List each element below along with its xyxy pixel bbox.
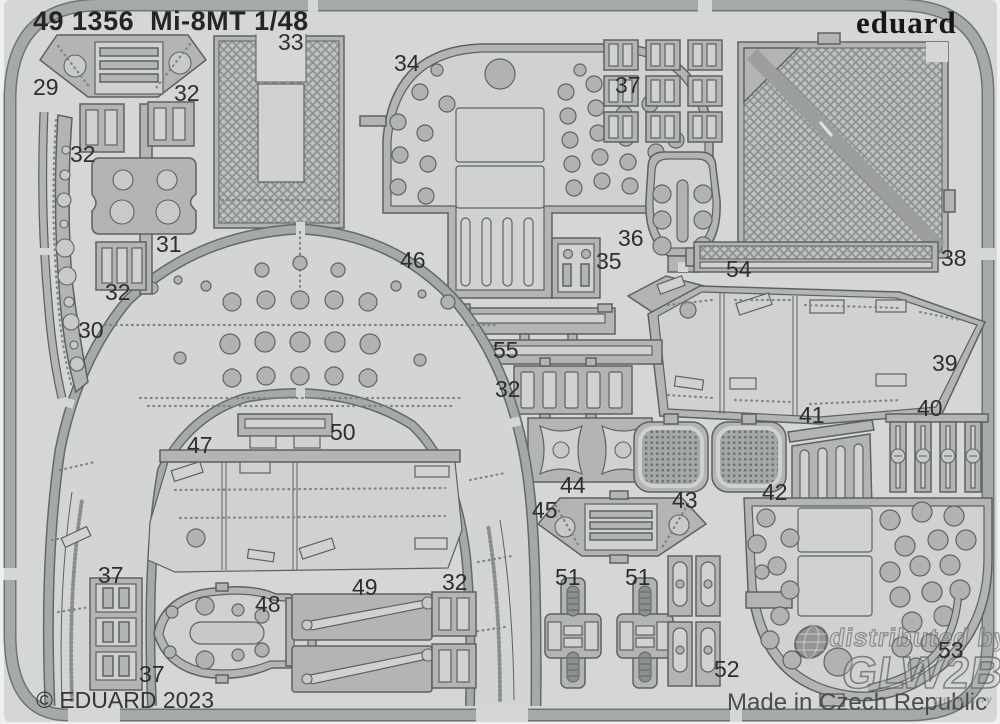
copyright-text: © EDUARD 2023 (36, 687, 214, 714)
part-54-shape (686, 242, 938, 272)
part-label-30: 30 (78, 319, 104, 342)
part-label-46: 46 (400, 249, 426, 272)
part-label-50: 50 (330, 421, 356, 444)
part-label-49: 49 (352, 576, 378, 599)
part-label-36: 36 (618, 227, 644, 250)
eduard-logo: eduard (856, 5, 957, 41)
catalog-number: 49 1356 (33, 6, 134, 36)
part-label-42: 42 (762, 481, 788, 504)
part-label-32-d: 32 (495, 378, 521, 401)
part-label-37-bottom-b: 37 (139, 663, 165, 686)
part-37-bottom-shape (90, 578, 142, 690)
part-label-32-b: 32 (70, 143, 96, 166)
part-label-47: 47 (187, 434, 213, 457)
part-label-33: 33 (278, 31, 304, 54)
part-label-43: 43 (672, 489, 698, 512)
photoetch-sheet: 49 1356Mi-8MT 1/48 eduard © EDUARD 2023 … (0, 0, 1000, 724)
part-label-48: 48 (255, 593, 281, 616)
part-label-51-a: 51 (555, 566, 581, 589)
part-35-shape (552, 238, 600, 298)
sheet-title: 49 1356Mi-8MT 1/48 (33, 6, 309, 37)
part-label-53: 53 (938, 639, 964, 662)
part-label-44: 44 (560, 474, 586, 497)
part-label-38: 38 (941, 247, 967, 270)
part-label-45: 45 (532, 499, 558, 522)
part-label-52: 52 (714, 658, 740, 681)
part-label-39: 39 (932, 352, 958, 375)
part-label-32-e: 32 (442, 571, 468, 594)
part-label-37-top: 37 (615, 74, 641, 97)
part-label-54: 54 (726, 258, 752, 281)
part-label-41: 41 (799, 404, 825, 427)
part-38-shape (738, 33, 955, 258)
part-label-37-bottom-a: 37 (98, 564, 124, 587)
part-label-32-c: 32 (105, 281, 131, 304)
part-label-29: 29 (33, 76, 59, 99)
made-in-text: Made in Czech Republic (727, 689, 987, 717)
part-label-31: 31 (156, 233, 182, 256)
part-label-40: 40 (917, 397, 943, 420)
part-label-51-b: 51 (625, 566, 651, 589)
part-label-32-a: 32 (174, 82, 200, 105)
part-33-shape (214, 34, 344, 228)
part-label-55: 55 (493, 339, 519, 362)
part-label-35: 35 (596, 250, 622, 273)
part-32-center-shape (514, 358, 632, 422)
part-label-34: 34 (394, 52, 420, 75)
